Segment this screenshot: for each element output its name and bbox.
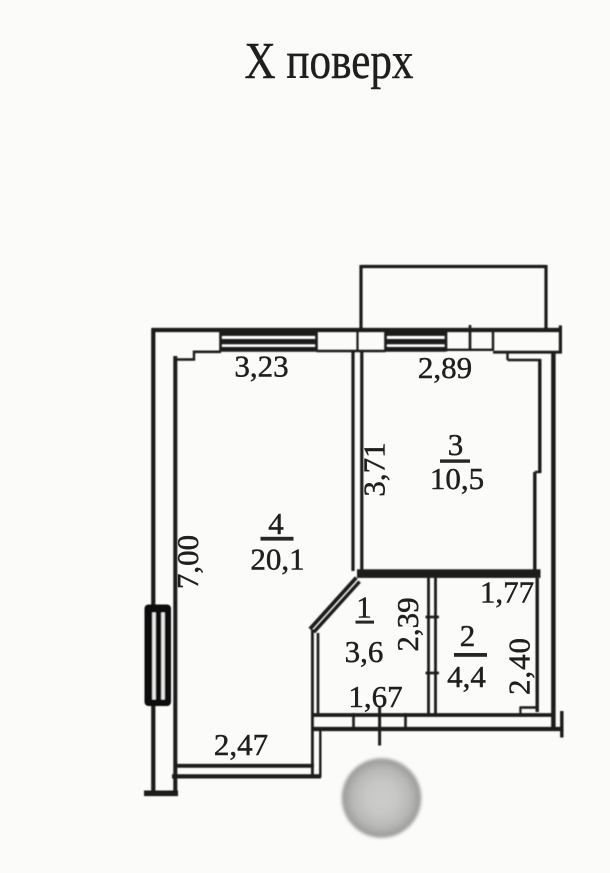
svg-text:2,89: 2,89 [418, 350, 472, 385]
svg-text:2,40: 2,40 [502, 638, 537, 695]
svg-text:4,4: 4,4 [447, 659, 486, 694]
svg-text:10,5: 10,5 [430, 461, 484, 496]
svg-text:7,00: 7,00 [170, 535, 205, 589]
svg-text:1,77: 1,77 [480, 575, 534, 610]
svg-text:Х поверх: Х поверх [245, 33, 414, 90]
svg-text:3: 3 [448, 427, 464, 462]
svg-text:3,6: 3,6 [345, 634, 384, 669]
svg-text:2,47: 2,47 [214, 727, 268, 762]
svg-text:1: 1 [356, 590, 372, 625]
svg-text:4: 4 [268, 506, 284, 541]
svg-text:20,1: 20,1 [250, 542, 304, 577]
svg-text:3,23: 3,23 [234, 349, 288, 384]
svg-text:3,71: 3,71 [357, 442, 392, 496]
svg-text:2: 2 [460, 618, 476, 653]
svg-text:1,67: 1,67 [348, 679, 402, 714]
svg-text:2,39: 2,39 [390, 597, 425, 651]
